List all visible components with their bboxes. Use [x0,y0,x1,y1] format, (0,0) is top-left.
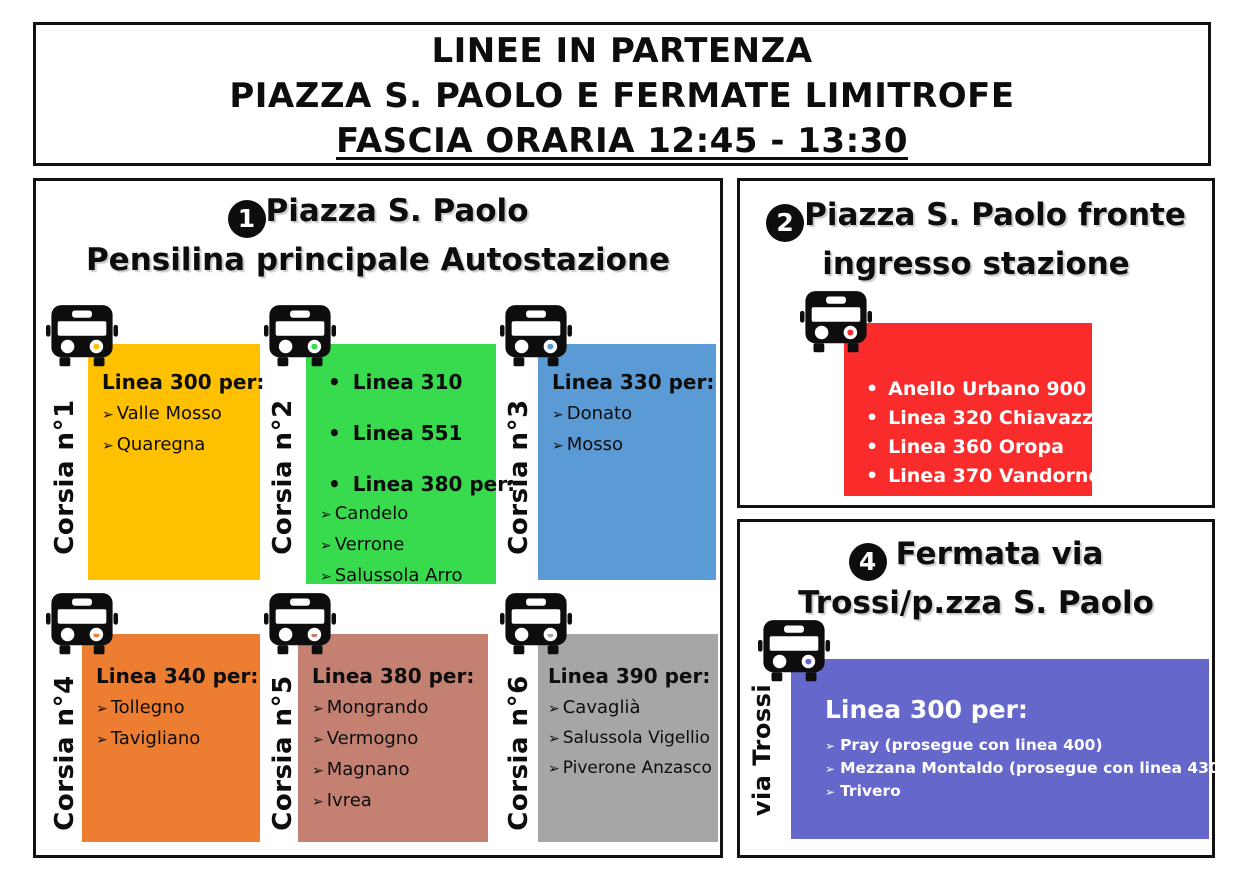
line-heading: Linea 340 per: [96,664,254,688]
line-item: •Linea 370 Vandorno [866,462,1092,491]
arrow-bullet-icon: ➢ [548,755,560,784]
panel2-subtitle: ingresso stazione [740,242,1212,286]
panel4-title: Fermata via [896,536,1104,572]
destination-item: ➢Quaregna [102,430,254,461]
lane-label-corsia-3: Corsia n°3 [504,347,540,607]
dot-bullet-icon: • [328,370,341,394]
line-label: Linea 370 Vandorno [888,462,1101,491]
destination-label: Cavaglià [563,693,641,722]
dot-bullet-icon: • [866,462,878,491]
dot-bullet-icon: • [328,472,341,496]
destination-label: Pray (prosegue con linea 400) [840,734,1102,756]
destination-label: Vermogno [327,724,418,753]
line-label: Linea 551 [353,421,463,445]
stand-corsia-1: Corsia n°1 Linea 300 per: ➢Valle Mosso ➢… [44,307,266,597]
line-heading: Linea 300 per: [102,370,254,394]
destination-item: ➢Vermogno [312,724,482,755]
lane-label-corsia-1: Corsia n°1 [50,347,86,607]
time-range: FASCIA ORARIA 12:45 - 13:30 [36,119,1208,164]
stand-box-corsia-4: Linea 340 per: ➢Tollegno ➢Tavigliano [82,634,260,842]
arrow-bullet-icon: ➢ [96,726,108,755]
destination-item: ➢Mosso [552,430,710,461]
bus-icon [500,591,572,660]
destination-item: ➢Trivero [825,780,1209,803]
destination-item: ➢Salussola Vigellio [548,724,712,754]
destination-label: Mongrando [327,693,429,722]
badge-4: 4 [849,543,887,581]
panel-fronte-ingresso: 2Piazza S. Paolo fronte ingresso stazion… [737,178,1215,508]
stop-box-ingresso: •Anello Urbano 900 •Linea 320 Chiavazza … [844,323,1092,496]
line-item: •Linea 320 Chiavazza [866,404,1092,433]
destination-label: Salussola Arro [335,561,463,590]
destination-item: ➢Candelo [320,499,490,530]
bus-icon [46,303,118,372]
destination-label: Tavigliano [111,724,201,753]
destination-label: Tollegno [111,693,185,722]
dot-bullet-icon: • [866,404,878,433]
arrow-bullet-icon: ➢ [96,695,108,724]
arrow-bullet-icon: ➢ [312,788,324,817]
arrow-bullet-icon: ➢ [825,781,835,803]
arrow-bullet-icon: ➢ [320,532,332,561]
stand-box-corsia-2: •Linea 310 •Linea 551 •Linea 380 per: ➢C… [306,344,496,584]
destination-item: ➢Magnano [312,755,482,786]
poster-title: LINEE IN PARTENZA [36,29,1208,74]
bus-icon [758,618,830,687]
destination-item: ➢Ivrea [312,786,482,817]
badge-1: 1 [228,200,266,238]
destination-label: Trivero [840,780,901,802]
badge-2: 2 [766,204,804,242]
line-heading: Linea 380 per: [312,664,482,688]
destination-label: Candelo [335,499,409,528]
destination-label: Donato [567,399,632,428]
arrow-bullet-icon: ➢ [320,501,332,530]
destination-item: ➢Valle Mosso [102,399,254,430]
line-label: Linea 310 [353,370,463,394]
panel1-title: Piazza S. Paolo [266,193,529,229]
arrow-bullet-icon: ➢ [548,695,560,724]
stand-box-corsia-5: Linea 380 per: ➢Mongrando ➢Vermogno ➢Mag… [298,634,488,842]
bus-icon [264,591,336,660]
arrow-bullet-icon: ➢ [320,563,332,592]
stand-box-corsia-1: Linea 300 per: ➢Valle Mosso ➢Quaregna [88,344,260,580]
line-item: •Linea 551 [328,421,490,445]
panel4-header: 4Fermata via [740,532,1212,581]
line-label: Anello Urbano 900 [888,375,1086,404]
destination-label: Mosso [567,430,623,459]
stand-corsia-6: Corsia n°6 Linea 390 per: ➢Cavaglià ➢Sal… [498,595,720,878]
lane-label-corsia-4: Corsia n°4 [50,623,86,878]
panel2-header: 2Piazza S. Paolo fronte [740,193,1212,242]
line-item: •Linea 360 Oropa [866,433,1092,462]
poster-subtitle: PIAZZA S. PAOLO E FERMATE LIMITROFE [36,74,1208,119]
panel-pensilina-principale: 1Piazza S. Paolo Pensilina principale Au… [33,178,723,858]
destination-label: Piverone Anzasco [563,754,712,783]
dot-bullet-icon: • [866,375,878,404]
stand-corsia-5: Corsia n°5 Linea 380 per: ➢Mongrando ➢Ve… [262,595,484,878]
bus-icon [264,303,336,372]
destination-label: Mezzana Montaldo (prosegue con linea 430… [840,757,1227,779]
line-heading: Linea 300 per: [825,695,1209,724]
stand-corsia-2: Corsia n°2 •Linea 310 •Linea 551 •Linea … [262,307,484,597]
line-label: Linea 360 Oropa [888,433,1064,462]
destination-label: Magnano [327,755,410,784]
destination-label: Quaregna [117,430,206,459]
destination-item: ➢Tollegno [96,693,254,724]
panel1-header: 1Piazza S. Paolo [36,189,720,238]
arrow-bullet-icon: ➢ [312,726,324,755]
arrow-bullet-icon: ➢ [312,695,324,724]
stop-box-via-trossi: Linea 300 per: ➢Pray (prosegue con linea… [791,659,1209,839]
arrow-bullet-icon: ➢ [312,757,324,786]
destination-item: ➢Tavigliano [96,724,254,755]
line-item: •Anello Urbano 900 [866,375,1092,404]
arrow-bullet-icon: ➢ [552,432,564,461]
destination-item: ➢Salussola Arro [320,561,490,592]
destination-label: Verrone [335,530,405,559]
line-heading: Linea 390 per: [548,664,712,688]
destination-item: ➢Pray (prosegue con linea 400) [825,734,1209,757]
line-heading: Linea 330 per: [552,370,710,394]
arrow-bullet-icon: ➢ [548,725,560,754]
line-item: •Linea 310 [328,370,490,394]
bus-icon [800,289,872,358]
arrow-bullet-icon: ➢ [102,432,114,461]
bus-departures-poster: LINEE IN PARTENZA PIAZZA S. PAOLO E FERM… [0,0,1242,878]
destination-label: Ivrea [327,786,372,815]
stand-corsia-3: Corsia n°3 Linea 330 per: ➢Donato ➢Mosso [498,307,720,597]
arrow-bullet-icon: ➢ [102,401,114,430]
destination-label: Valle Mosso [117,399,222,428]
destination-item: ➢Mongrando [312,693,482,724]
line-label: Linea 380 per: [353,472,515,496]
arrow-bullet-icon: ➢ [552,401,564,430]
stand-corsia-4: Corsia n°4 Linea 340 per: ➢Tollegno ➢Tav… [44,595,266,878]
dot-bullet-icon: • [328,421,341,445]
stand-box-corsia-6: Linea 390 per: ➢Cavaglià ➢Salussola Vige… [538,634,718,842]
line-item: •Linea 380 per: [328,472,490,496]
dot-bullet-icon: • [866,433,878,462]
arrow-bullet-icon: ➢ [825,758,835,780]
panel1-subtitle: Pensilina principale Autostazione [36,238,720,282]
panel2-title: Piazza S. Paolo fronte [804,197,1186,233]
bus-icon [46,591,118,660]
destination-item: ➢Cavaglià [548,693,712,724]
destination-item: ➢Mezzana Montaldo (prosegue con linea 43… [825,757,1209,780]
bus-icon [500,303,572,372]
line-label: Linea 320 Chiavazza [888,404,1106,433]
arrow-bullet-icon: ➢ [825,735,835,757]
destination-label: Salussola Vigellio [563,724,710,753]
lane-label-corsia-2: Corsia n°2 [268,347,304,607]
panel-via-trossi: 4Fermata via Trossi/p.zza S. Paolo via T… [737,519,1215,858]
title-box: LINEE IN PARTENZA PIAZZA S. PAOLO E FERM… [33,22,1211,166]
destination-item: ➢Piverone Anzasco [548,754,712,784]
destination-item: ➢Verrone [320,530,490,561]
destination-item: ➢Donato [552,399,710,430]
stand-box-corsia-3: Linea 330 per: ➢Donato ➢Mosso [538,344,716,580]
lane-label-corsia-6: Corsia n°6 [504,623,540,878]
